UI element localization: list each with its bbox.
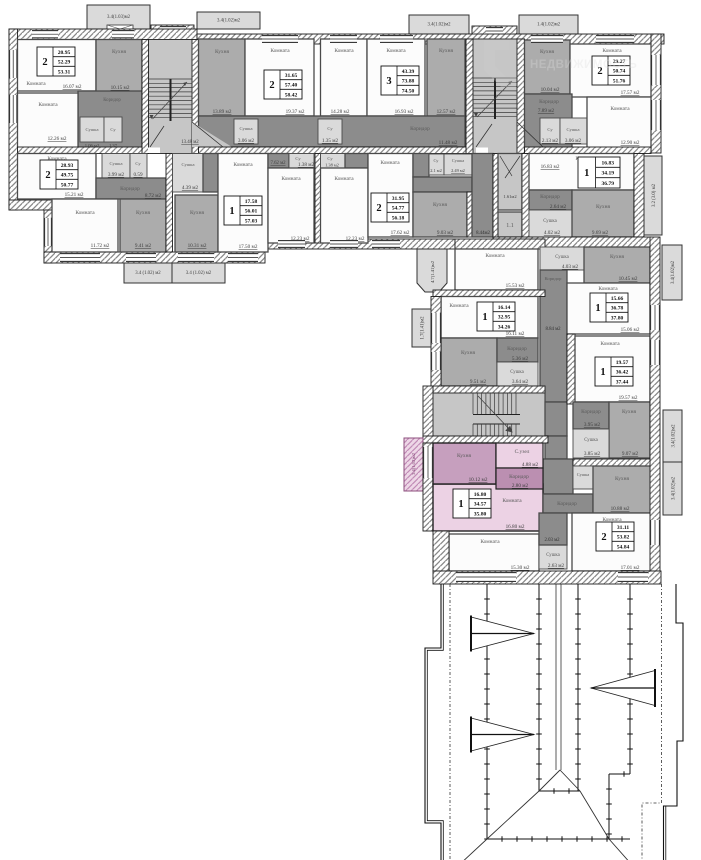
- svg-text:Сушка: Сушка: [452, 158, 464, 163]
- svg-text:Коридор: Коридор: [509, 474, 529, 480]
- svg-text:4.03 м2: 4.03 м2: [562, 264, 579, 270]
- svg-text:Су: Су: [327, 126, 333, 131]
- svg-text:Комната: Комната: [610, 106, 630, 112]
- svg-text:35.80: 35.80: [474, 511, 487, 517]
- svg-text:Сушка: Сушка: [567, 127, 580, 132]
- svg-text:4.02 м2: 4.02 м2: [544, 230, 561, 236]
- svg-text:14.28 м2: 14.28 м2: [331, 109, 350, 115]
- svg-text:С.узел: С.узел: [515, 449, 530, 455]
- svg-text:Кухня: Кухня: [433, 202, 447, 208]
- svg-text:Су: Су: [547, 127, 553, 132]
- svg-text:4.7(1.41)м2: 4.7(1.41)м2: [430, 260, 435, 283]
- svg-text:32.95: 32.95: [498, 315, 511, 321]
- svg-text:11.48 м2: 11.48 м2: [439, 140, 458, 146]
- svg-text:15.66: 15.66: [611, 296, 624, 302]
- svg-text:3.4(1.02)м2: 3.4(1.02)м2: [427, 23, 451, 28]
- svg-text:Кухня: Кухня: [540, 49, 554, 55]
- svg-text:1: 1: [458, 499, 463, 510]
- svg-text:Сушка: Сушка: [584, 438, 598, 443]
- svg-text:37.80: 37.80: [611, 315, 624, 321]
- svg-text:9.07 м2: 9.07 м2: [622, 451, 639, 457]
- svg-text:19.57: 19.57: [616, 360, 629, 366]
- svg-text:52.29: 52.29: [58, 60, 71, 66]
- svg-text:15.53 м2: 15.53 м2: [506, 283, 525, 289]
- svg-text:3.4(1.02)м2: 3.4(1.02)м2: [671, 260, 676, 284]
- svg-text:Сушка: Сушка: [182, 162, 195, 167]
- svg-text:16.11 м2: 16.11 м2: [506, 331, 525, 337]
- svg-text:3.4(1.02)м2: 3.4(1.02)м2: [671, 476, 676, 500]
- svg-text:0.59: 0.59: [133, 172, 142, 178]
- svg-text:1: 1: [229, 206, 234, 217]
- svg-text:15.06 м2: 15.06 м2: [621, 327, 640, 333]
- svg-text:2.64 м2: 2.64 м2: [550, 204, 567, 210]
- svg-text:1: 1: [584, 168, 589, 179]
- svg-text:2: 2: [601, 532, 606, 543]
- svg-text:Кухня: Кухня: [112, 49, 126, 55]
- svg-text:31.95: 31.95: [392, 196, 405, 202]
- svg-text:Комната: Комната: [386, 48, 406, 54]
- svg-text:17.58: 17.58: [245, 199, 258, 205]
- svg-text:10.15 м2: 10.15 м2: [111, 85, 130, 91]
- svg-text:3.4(1.02)м2: 3.4(1.02)м2: [671, 424, 676, 448]
- svg-text:Кухня: Кухня: [610, 254, 624, 260]
- svg-text:13.48 м2: 13.48 м2: [181, 140, 199, 145]
- svg-text:Коридор: Коридор: [103, 98, 121, 103]
- svg-text:19.37 м2: 19.37 м2: [286, 109, 305, 115]
- svg-text:3.4(1.02)м2: 3.4(1.02)м2: [217, 19, 241, 24]
- svg-text:3: 3: [386, 76, 391, 87]
- svg-text:16.80 м2: 16.80 м2: [506, 524, 525, 530]
- svg-text:56.01: 56.01: [245, 209, 258, 215]
- svg-text:Комната: Комната: [270, 48, 290, 54]
- svg-text:53.82: 53.82: [617, 535, 630, 541]
- svg-text:Кухня: Кухня: [215, 49, 229, 55]
- svg-text:54.77: 54.77: [392, 206, 405, 212]
- svg-text:Кухня: Кухня: [615, 476, 629, 482]
- svg-text:Коридор: Коридор: [507, 346, 527, 352]
- svg-text:Комната: Комната: [233, 162, 253, 168]
- svg-text:74.50: 74.50: [402, 88, 415, 94]
- svg-text:Коридор: Коридор: [410, 126, 430, 132]
- svg-text:1: 1: [600, 367, 605, 378]
- svg-text:50.77: 50.77: [61, 182, 74, 188]
- svg-text:3.06 м2: 3.06 м2: [565, 138, 582, 144]
- svg-text:Коридор: Коридор: [539, 99, 559, 105]
- svg-text:16.93 м2: 16.93 м2: [395, 109, 414, 115]
- svg-text:Комната: Комната: [26, 81, 46, 87]
- svg-text:8.44м2: 8.44м2: [476, 231, 490, 236]
- svg-text:9.69 м2: 9.69 м2: [592, 230, 609, 236]
- svg-text:51.76: 51.76: [613, 78, 626, 84]
- svg-text:2.1 м2: 2.1 м2: [430, 168, 442, 173]
- svg-text:3.06 м2: 3.06 м2: [238, 138, 255, 144]
- svg-text:2.63 м2: 2.63 м2: [548, 563, 565, 569]
- svg-text:Су: Су: [110, 127, 116, 132]
- svg-text:73.88: 73.88: [402, 79, 415, 85]
- svg-text:10.45 м2: 10.45 м2: [619, 276, 638, 282]
- svg-text:Кухня: Кухня: [439, 48, 453, 54]
- svg-text:8.84 м2: 8.84 м2: [545, 327, 561, 332]
- svg-text:3.85 м2: 3.85 м2: [584, 451, 601, 457]
- svg-text:Комната: Комната: [485, 253, 505, 259]
- svg-text:5.36 м2: 5.36 м2: [512, 356, 529, 362]
- svg-text:12.57 м2: 12.57 м2: [437, 109, 456, 115]
- svg-text:3.4(1.02)м2: 3.4(1.02)м2: [411, 452, 416, 475]
- svg-text:1.4(1.02)м2: 1.4(1.02)м2: [537, 23, 561, 28]
- svg-text:9.41 м2: 9.41 м2: [135, 243, 152, 249]
- svg-text:4.88 м2: 4.88 м2: [522, 462, 539, 468]
- svg-text:Комната: Комната: [281, 176, 301, 182]
- svg-text:Сушка: Сушка: [110, 161, 123, 166]
- svg-text:16.14: 16.14: [498, 305, 511, 311]
- svg-text:2: 2: [45, 170, 50, 181]
- svg-text:28.93: 28.93: [61, 163, 74, 169]
- svg-text:7.89 м2: 7.89 м2: [538, 108, 555, 114]
- svg-text:1: 1: [482, 312, 487, 323]
- svg-text:1.1: 1.1: [506, 223, 514, 229]
- svg-text:10.12 м2: 10.12 м2: [469, 477, 488, 483]
- svg-text:31.65: 31.65: [285, 73, 298, 79]
- svg-text:Сушка: Сушка: [546, 553, 560, 558]
- svg-text:53.31: 53.31: [58, 69, 71, 75]
- svg-text:Кухня: Кухня: [190, 210, 204, 216]
- svg-text:Кухня: Кухня: [461, 350, 475, 356]
- svg-text:3.64 м2: 3.64 м2: [512, 379, 529, 385]
- svg-text:Комната: Комната: [502, 498, 522, 504]
- svg-text:3.4 (1.02) м2: 3.4 (1.02) м2: [186, 271, 212, 276]
- svg-text:12.26 м2: 12.26 м2: [48, 136, 67, 142]
- svg-text:Кухня: Кухня: [596, 204, 610, 210]
- svg-text:12.90 м2: 12.90 м2: [621, 140, 640, 146]
- svg-text:17.50 м2: 17.50 м2: [239, 244, 258, 250]
- svg-text:34.26: 34.26: [498, 324, 511, 330]
- svg-text:16.83 м2: 16.83 м2: [541, 164, 560, 170]
- svg-text:Су: Су: [295, 156, 301, 161]
- svg-text:Коридор: Коридор: [581, 409, 601, 415]
- svg-text:15.30 м2: 15.30 м2: [511, 565, 530, 571]
- svg-text:17.57 м2: 17.57 м2: [621, 90, 640, 96]
- svg-text:Су: Су: [135, 161, 141, 166]
- svg-text:31.11: 31.11: [617, 525, 629, 531]
- svg-text:Сушка: Сушка: [555, 255, 569, 260]
- svg-text:Комната: Комната: [380, 160, 400, 166]
- svg-text:Комната: Комната: [75, 210, 95, 216]
- svg-text:1: 1: [595, 303, 600, 314]
- svg-text:19.57 м2: 19.57 м2: [619, 395, 638, 401]
- svg-text:16.83: 16.83: [602, 160, 615, 166]
- svg-text:3.95 м2: 3.95 м2: [584, 422, 601, 428]
- svg-text:37.44: 37.44: [616, 379, 629, 385]
- svg-text:2.80 м2: 2.80 м2: [512, 483, 529, 489]
- svg-text:9.03 м2: 9.03 м2: [437, 230, 454, 236]
- svg-text:3.4 (1.02) м2: 3.4 (1.02) м2: [135, 271, 161, 276]
- svg-text:Сушка: Сушка: [86, 127, 99, 132]
- svg-text:1.61м2: 1.61м2: [503, 194, 517, 199]
- svg-text:НЕДВИЖИМОСТЬ: НЕДВИЖИМОСТЬ: [530, 59, 637, 71]
- svg-text:Сушка: Сушка: [510, 370, 524, 375]
- svg-text:16.80: 16.80: [474, 492, 487, 498]
- svg-text:36.78: 36.78: [611, 306, 624, 312]
- svg-text:1.38 м2: 1.38 м2: [298, 162, 315, 168]
- svg-text:10.31 м2: 10.31 м2: [188, 243, 207, 249]
- svg-text:1.7(1.41)м2: 1.7(1.41)м2: [420, 316, 425, 340]
- svg-text:Комната: Комната: [600, 341, 620, 347]
- svg-text:36.42: 36.42: [616, 370, 629, 376]
- svg-text:Су: Су: [433, 158, 439, 163]
- svg-text:11.72 м2: 11.72 м2: [91, 243, 110, 249]
- svg-text:2: 2: [269, 80, 274, 91]
- svg-text:9.51 м2: 9.51 м2: [470, 379, 487, 385]
- svg-text:2.13 м2: 2.13 м2: [542, 138, 559, 144]
- svg-text:Су: Су: [327, 156, 333, 161]
- svg-text:4.39 м2: 4.39 м2: [182, 185, 199, 191]
- svg-text:34.57: 34.57: [474, 502, 487, 508]
- svg-text:Комната: Комната: [598, 286, 618, 292]
- svg-text:20.95: 20.95: [58, 50, 71, 56]
- svg-text:2: 2: [376, 203, 381, 214]
- svg-text:Комната: Комната: [334, 176, 354, 182]
- svg-text:43.39: 43.39: [402, 69, 415, 75]
- svg-text:3.2 (3.0) м2: 3.2 (3.0) м2: [652, 183, 657, 207]
- svg-text:1.35 м2: 1.35 м2: [322, 138, 339, 144]
- svg-text:Комната: Комната: [480, 539, 500, 545]
- svg-text:10.04 м2: 10.04 м2: [541, 87, 560, 93]
- svg-text:3.4(1.03)м2: 3.4(1.03)м2: [107, 15, 131, 20]
- svg-text:1.38 м2: 1.38 м2: [325, 163, 339, 168]
- svg-text:13.89 м2: 13.89 м2: [213, 109, 232, 115]
- svg-text:Комната: Комната: [602, 48, 622, 54]
- svg-text:Кухня: Кухня: [136, 210, 150, 216]
- svg-text:Сушка: Сушка: [543, 219, 557, 224]
- svg-text:Сушка: Сушка: [240, 126, 253, 131]
- svg-text:16.07 м2: 16.07 м2: [63, 84, 82, 90]
- svg-text:57.40: 57.40: [285, 83, 298, 89]
- svg-text:2.49 м2: 2.49 м2: [451, 168, 465, 173]
- svg-text:Коридор: Коридор: [120, 186, 140, 192]
- svg-text:17.01 м2: 17.01 м2: [621, 565, 640, 571]
- svg-text:57.03: 57.03: [245, 218, 258, 224]
- svg-text:58.42: 58.42: [285, 92, 298, 98]
- svg-text:49.75: 49.75: [61, 173, 74, 179]
- svg-text:Сушка: Сушка: [577, 472, 589, 477]
- svg-text:17.62 м2: 17.62 м2: [391, 230, 410, 236]
- svg-text:Кухня: Кухня: [622, 409, 636, 415]
- svg-text:Коридор: Коридор: [545, 276, 563, 281]
- svg-text:2: 2: [42, 57, 47, 68]
- svg-text:Коридор: Коридор: [540, 194, 560, 200]
- svg-text:10.88 м2: 10.88 м2: [611, 506, 630, 512]
- svg-text:34.19: 34.19: [602, 171, 615, 177]
- svg-text:Комната: Комната: [449, 303, 469, 309]
- svg-text:Комната: Комната: [38, 102, 58, 108]
- svg-text:54.84: 54.84: [617, 544, 630, 550]
- svg-text:Комната: Комната: [334, 48, 354, 54]
- svg-text:2.03 м2: 2.03 м2: [544, 538, 560, 543]
- svg-text:7.62 м2: 7.62 м2: [270, 161, 286, 166]
- svg-text:Коридор: Коридор: [557, 501, 577, 507]
- svg-text:Кухня: Кухня: [457, 453, 471, 459]
- svg-text:3.99 м2: 3.99 м2: [108, 172, 125, 178]
- svg-text:36.79: 36.79: [602, 181, 615, 187]
- svg-text:56.18: 56.18: [392, 215, 405, 221]
- svg-text:8.72 м2: 8.72 м2: [145, 193, 162, 199]
- svg-text:15.21 м2: 15.21 м2: [65, 192, 84, 198]
